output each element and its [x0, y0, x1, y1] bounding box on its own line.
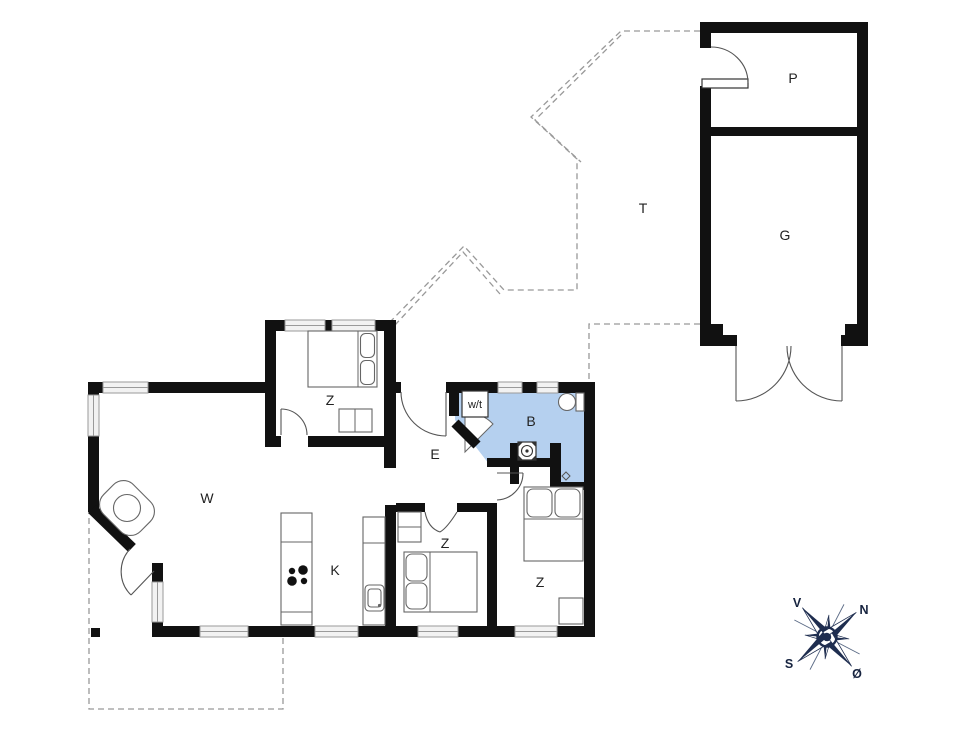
label-living: W — [200, 490, 214, 506]
compass-label-north: N — [859, 603, 868, 617]
fireplace — [94, 475, 160, 541]
storage-door-arc — [711, 47, 748, 83]
bed-top-bedroom — [308, 331, 377, 387]
label-kitchen: K — [330, 562, 340, 578]
bedroom-mid-door-arc — [425, 512, 457, 532]
label-bedroom-mid: Z — [441, 535, 450, 551]
floor-drain — [518, 442, 536, 460]
walls — [88, 22, 868, 637]
bedroom-top-door-arc — [281, 409, 307, 435]
terrace-outline-main — [391, 31, 700, 321]
wardrobe-middle-bedroom — [398, 512, 421, 542]
label-garage: G — [780, 227, 791, 243]
entrance-door-arc — [401, 392, 446, 436]
label-entry: E — [430, 446, 439, 462]
patio-door-leaf — [131, 571, 154, 595]
compass-label-east: Ø — [852, 667, 862, 681]
label-storage: P — [788, 70, 797, 86]
terrace-outline-garage-link — [589, 324, 700, 379]
bed-middle-bedroom — [404, 552, 477, 612]
nightstand-right-bedroom — [559, 598, 583, 624]
kitchen-sink — [365, 585, 384, 611]
label-bedroom-top: Z — [326, 392, 335, 408]
floor-plan-page: W K Z Z Z E B w/t P G T — [0, 0, 960, 731]
compass-label-west: V — [793, 596, 802, 610]
label-bedroom-right: Z — [536, 574, 545, 590]
terrace-outline-double1 — [535, 35, 621, 162]
garage-door-left-arc — [736, 346, 791, 401]
terrace-outline-southwest — [89, 438, 283, 709]
compass-label-south: S — [785, 657, 793, 671]
label-bath: B — [526, 413, 535, 429]
bed-right-bedroom — [524, 487, 583, 561]
garage-door-right-arc — [787, 346, 842, 401]
toilet — [559, 393, 585, 411]
floor-plan-canvas: W K Z Z Z E B w/t P G T — [0, 0, 960, 731]
compass-rose: V N S Ø — [773, 583, 880, 690]
label-utility: w/t — [467, 399, 482, 411]
label-terrace: T — [639, 200, 648, 216]
patio-door-arc — [121, 549, 131, 595]
storage-door-leaf — [702, 79, 748, 88]
